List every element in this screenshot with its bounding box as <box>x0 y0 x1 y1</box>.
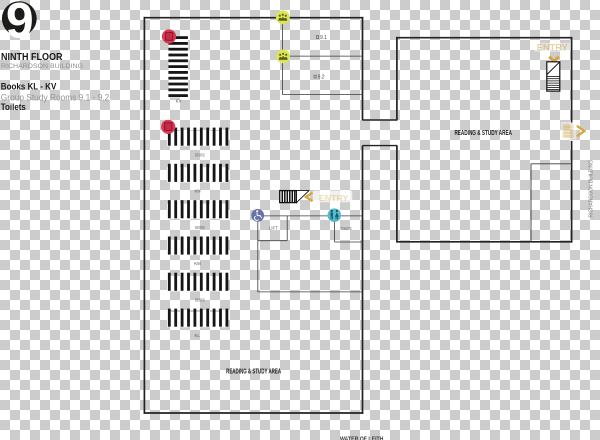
svg-text:KM: KM <box>194 261 201 266</box>
svg-text:KN: KN <box>194 189 200 194</box>
svg-text:RICHARDSON BUILDING: RICHARDSON BUILDING <box>1 63 83 70</box>
svg-text:BOOKS: BOOKS <box>195 297 205 302</box>
svg-text:Toilets: Toilets <box>1 102 26 112</box>
svg-text:KL: KL <box>195 333 201 338</box>
svg-text:WATER OF LEITH: WATER OF LEITH <box>340 436 384 440</box>
svg-text:RICHARDSON BUILDING: RICHARDSON BUILDING <box>589 160 595 218</box>
svg-text:READING & STUDY AREA: READING & STUDY AREA <box>454 130 512 137</box>
svg-text:LIFT: LIFT <box>269 226 279 231</box>
svg-text:BOOKS: BOOKS <box>195 153 205 158</box>
svg-text:9.1: 9.1 <box>320 35 327 41</box>
svg-text:TOILETS: TOILETS <box>341 226 352 231</box>
svg-text:BOOKS: BOOKS <box>195 225 205 230</box>
svg-text:ENTRY: ENTRY <box>537 43 568 53</box>
svg-text:9.2: 9.2 <box>318 75 325 81</box>
svg-text:9: 9 <box>6 0 34 48</box>
svg-text:ENTRY: ENTRY <box>319 193 349 203</box>
svg-text:Books KL - KV: Books KL - KV <box>1 81 57 91</box>
svg-text:READING & STUDY AREA: READING & STUDY AREA <box>226 368 281 375</box>
svg-text:KV: KV <box>176 99 182 104</box>
svg-text:Group Study Rooms 9.1 - 9.2: Group Study Rooms 9.1 - 9.2 <box>1 93 110 103</box>
svg-text:NINTH FLOOR: NINTH FLOOR <box>1 52 63 63</box>
